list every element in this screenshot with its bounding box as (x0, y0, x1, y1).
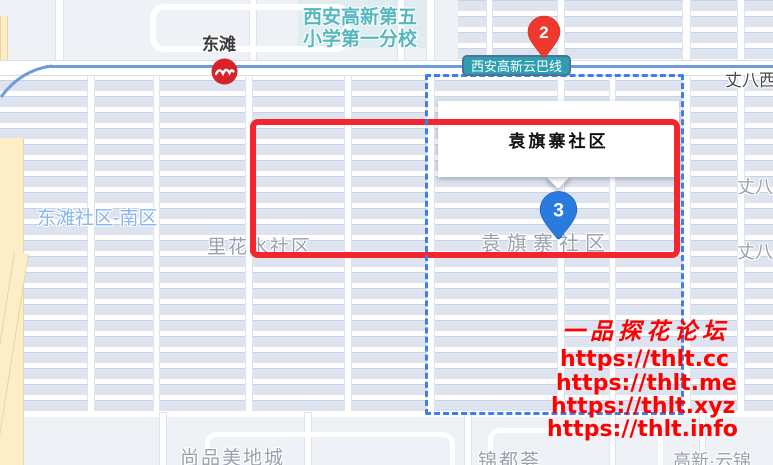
map-marker-2[interactable]: 2 (527, 15, 561, 59)
watermark-url-3: https://thlt.xyz (551, 394, 735, 419)
road-vertical (160, 413, 166, 465)
area-label-zhangba-b: 丈八 (737, 238, 773, 264)
cloud-bus-logo-icon[interactable] (211, 58, 238, 85)
area-label-shangpin: 尚品美地城 (180, 443, 285, 465)
watermark-url-2: https://thlt.me (556, 371, 737, 396)
road-vertical (154, 76, 159, 413)
area-label-zhangba-a: 丈八 (737, 173, 773, 199)
map-canvas[interactable]: 东滩 西安高新第五 小学第一分校 东滩社区-南区 里花水社区 袁旗寨社区 丈八西… (0, 0, 773, 465)
road-vertical (465, 413, 471, 465)
road-yellow (0, 16, 8, 62)
area-label-gaoxin-yunjin: 高新·云锦 (673, 447, 751, 465)
area-label-jinduhui: 锦都荟 (478, 446, 541, 465)
road-vertical (487, 0, 492, 60)
poi-label-dongtan: 东滩 (202, 30, 236, 55)
watermark-title: 一品探花论坛 (562, 312, 730, 346)
watermark-url-4: https://thlt.info (547, 417, 738, 442)
transit-line (46, 65, 773, 68)
marker-2-number: 2 (539, 23, 548, 42)
map-marker-3[interactable]: 3 (539, 190, 578, 241)
poi-label-school-line2: 小学第一分校 (303, 24, 417, 51)
area-label-dongtan-south: 东滩社区-南区 (37, 203, 157, 230)
road-label-zhangbaxi: 丈八西 (725, 66, 773, 91)
road-vertical (56, 0, 63, 60)
transit-line-curve (0, 60, 52, 100)
transit-badge-label: 西安高新云巴线 (471, 59, 562, 74)
watermark-url-1: https://thlt.cc (560, 347, 729, 372)
road-vertical (88, 76, 94, 413)
marker-3-number: 3 (553, 200, 564, 222)
